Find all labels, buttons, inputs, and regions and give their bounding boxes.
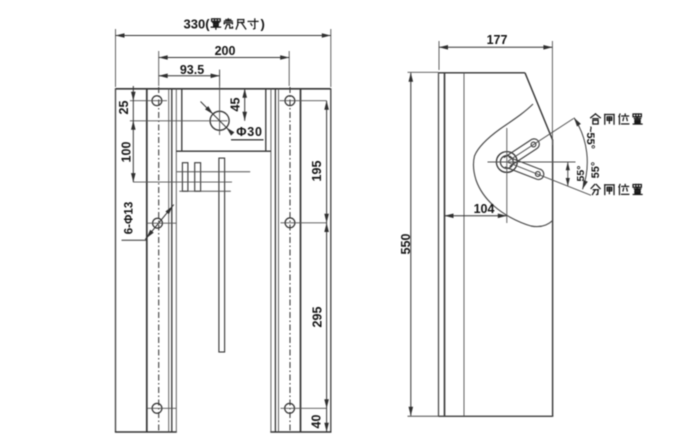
svg-text:55°: 55° bbox=[590, 162, 602, 179]
svg-text:): ) bbox=[261, 17, 265, 32]
svg-text:93.5: 93.5 bbox=[180, 63, 204, 77]
svg-text:25: 25 bbox=[117, 101, 131, 115]
svg-text:55°: 55° bbox=[575, 166, 587, 182]
svg-text:550: 550 bbox=[399, 234, 413, 255]
svg-text:104: 104 bbox=[474, 202, 495, 216]
svg-text:177: 177 bbox=[487, 33, 508, 47]
svg-text:45: 45 bbox=[229, 98, 243, 112]
svg-text:Φ30: Φ30 bbox=[236, 125, 263, 139]
svg-text:195: 195 bbox=[310, 161, 324, 182]
svg-text:330(: 330( bbox=[184, 17, 211, 32]
svg-text:100: 100 bbox=[120, 142, 134, 163]
svg-text:~55°: ~55° bbox=[584, 126, 596, 149]
svg-text:6-Φ13: 6-Φ13 bbox=[123, 202, 135, 234]
svg-text:295: 295 bbox=[310, 307, 324, 328]
svg-text:40: 40 bbox=[310, 415, 324, 429]
svg-text:200: 200 bbox=[215, 44, 236, 58]
